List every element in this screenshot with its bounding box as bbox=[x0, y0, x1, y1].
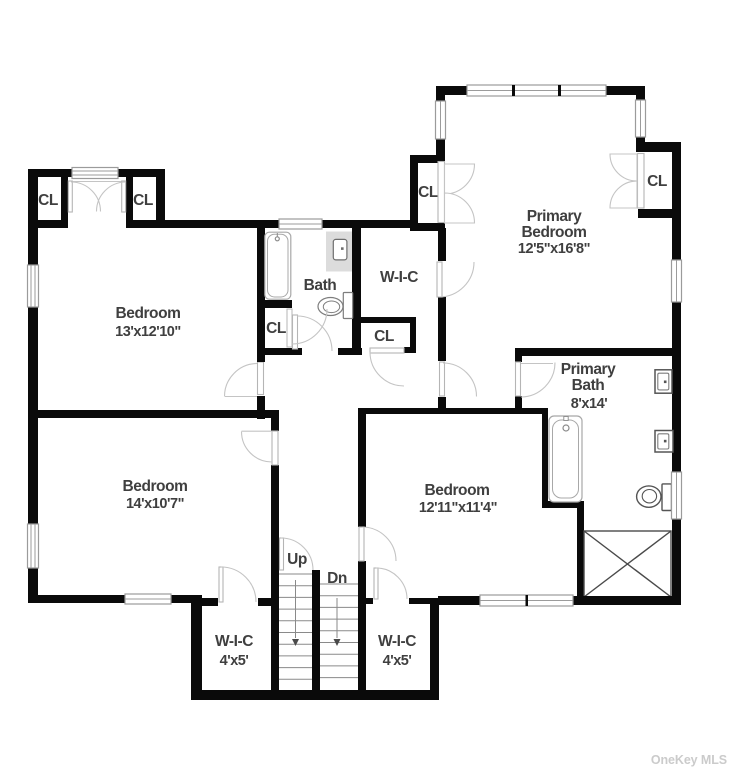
svg-text:Dn: Dn bbox=[327, 570, 347, 587]
svg-text:W-I-C: W-I-C bbox=[380, 269, 418, 286]
svg-text:12'11"x11'4": 12'11"x11'4" bbox=[419, 500, 497, 516]
svg-text:CL: CL bbox=[38, 192, 58, 209]
svg-text:CL: CL bbox=[374, 328, 394, 345]
svg-text:Bedroom: Bedroom bbox=[123, 478, 188, 495]
svg-text:4'x5': 4'x5' bbox=[220, 653, 249, 669]
svg-text:13'x12'10": 13'x12'10" bbox=[115, 324, 181, 340]
svg-text:Bedroom: Bedroom bbox=[425, 482, 490, 499]
svg-text:Up: Up bbox=[287, 551, 307, 568]
svg-text:CL: CL bbox=[266, 320, 286, 337]
svg-text:4'x5': 4'x5' bbox=[383, 653, 412, 669]
svg-text:Bedroom: Bedroom bbox=[522, 224, 587, 241]
svg-text:Primary: Primary bbox=[527, 208, 582, 225]
svg-text:CL: CL bbox=[418, 184, 438, 201]
svg-text:Bedroom: Bedroom bbox=[116, 305, 181, 322]
svg-text:8'x14': 8'x14' bbox=[571, 396, 607, 412]
svg-text:Primary: Primary bbox=[561, 361, 616, 378]
svg-text:W-I-C: W-I-C bbox=[215, 633, 253, 650]
svg-text:14'x10'7": 14'x10'7" bbox=[126, 496, 184, 512]
svg-text:W-I-C: W-I-C bbox=[378, 633, 416, 650]
svg-text:12'5"x16'8": 12'5"x16'8" bbox=[518, 241, 590, 257]
svg-text:CL: CL bbox=[647, 173, 667, 190]
svg-text:Bath: Bath bbox=[572, 377, 605, 394]
svg-text:OneKey MLS: OneKey MLS bbox=[651, 753, 727, 767]
svg-text:CL: CL bbox=[133, 192, 153, 209]
svg-text:Bath: Bath bbox=[304, 277, 337, 294]
